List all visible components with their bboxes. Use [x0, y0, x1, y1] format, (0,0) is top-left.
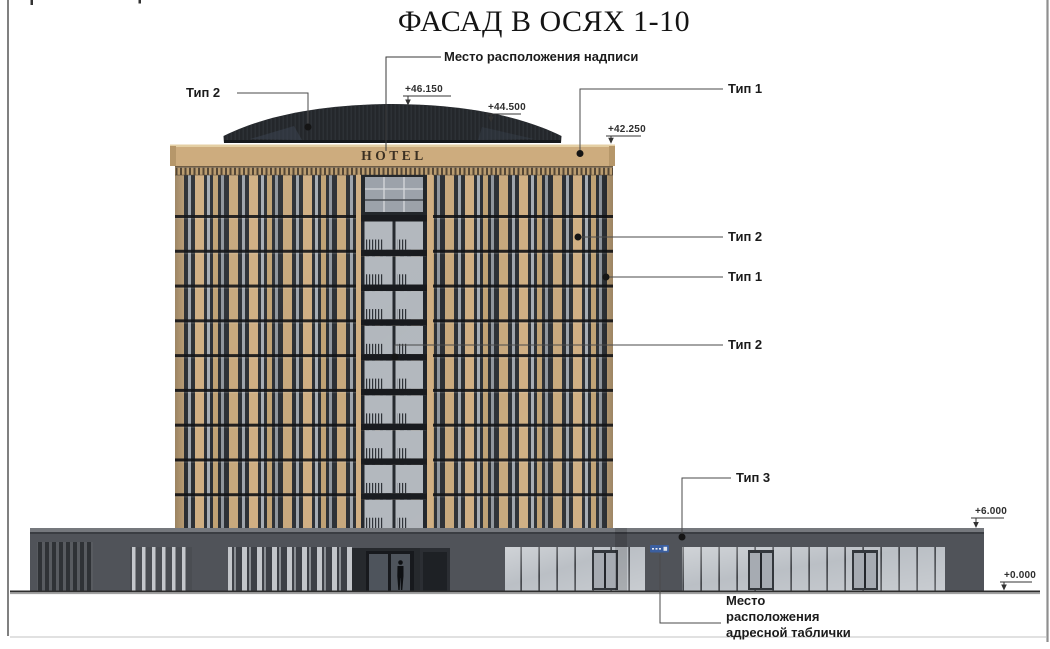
podium-slat-screen — [37, 542, 93, 591]
callout-address-plate-label: Место расположения адресной таблички — [726, 593, 851, 641]
callout-type1-cornice-label: Тип 1 — [728, 81, 762, 97]
elevation-cornice-top: +42.250 — [608, 124, 646, 135]
podium-strip-glazing — [228, 547, 352, 591]
elevation-podium-top: +6.000 — [975, 506, 1007, 517]
top-tick — [139, 0, 142, 4]
elevation-ground: +0.000 — [1004, 570, 1036, 581]
page-title: ФАСАД В ОСЯХ 1-10 — [398, 5, 690, 39]
podium-entrance-door — [352, 548, 420, 591]
cornice: HOTEL — [170, 145, 615, 175]
address-plate-line1: Место — [726, 593, 851, 609]
elevation-roof-eave: +44.500 — [488, 102, 526, 113]
ground-line — [10, 591, 1040, 595]
podium-slit-windows — [130, 547, 192, 591]
callout-type2-facade-right-label: Тип 2 — [728, 229, 762, 245]
podium — [30, 528, 984, 591]
cornice-frieze — [175, 168, 613, 175]
facade-drawing: HOTEL — [0, 0, 1050, 649]
callout-inscription-place-label: Место расположения надписи — [444, 49, 638, 65]
address-plaque — [650, 545, 669, 553]
address-plate-line2: расположения — [726, 609, 851, 625]
callout-type1-facade-right-label: Тип 1 — [728, 269, 762, 285]
elevation-roof-peak: +46.150 — [405, 84, 443, 95]
facade-drawing-page: HOTEL — [0, 0, 1050, 649]
address-plate-line3: адресной таблички — [726, 625, 851, 641]
callout-type3-podium-label: Тип 3 — [736, 470, 770, 486]
callout-type2-roof-label: Тип 2 — [186, 85, 220, 101]
hotel-sign: HOTEL — [361, 148, 427, 163]
podium-storefront-right — [682, 547, 945, 591]
podium-service-opening — [423, 552, 447, 591]
top-tick — [31, 0, 34, 5]
tower-facade — [175, 174, 613, 529]
callout-type2-facade-center-label: Тип 2 — [728, 337, 762, 353]
